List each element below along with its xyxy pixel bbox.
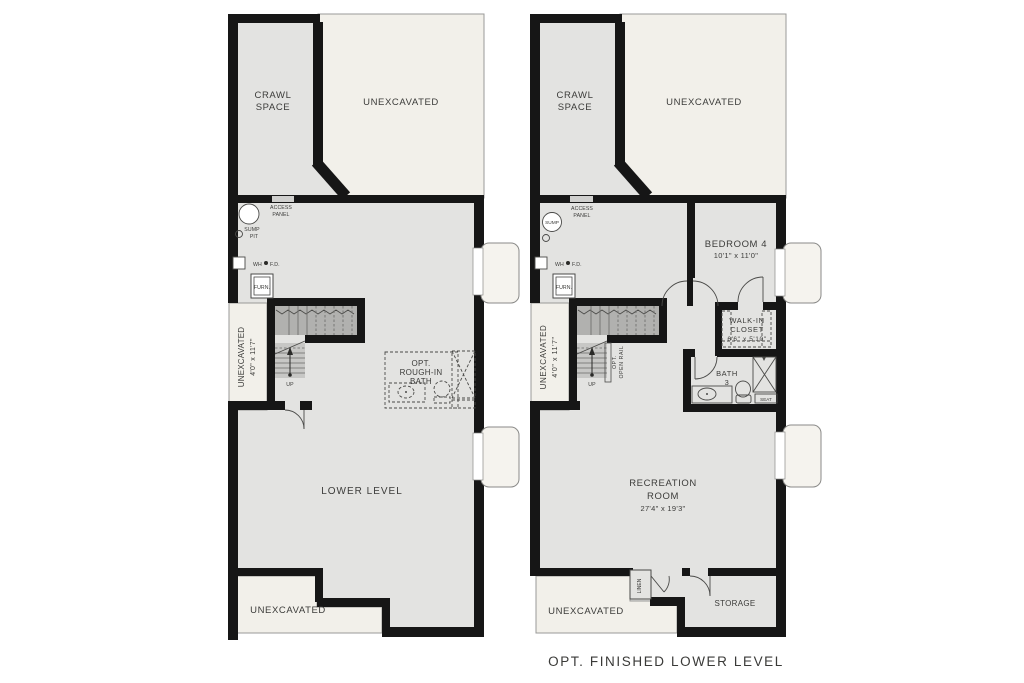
water-heater-symbol (535, 257, 547, 269)
svg-text:PANEL: PANEL (573, 213, 590, 219)
svg-text:OPEN RAIL: OPEN RAIL (619, 345, 625, 378)
label-wh: WH (555, 262, 564, 268)
svg-text:4'0" x 11'7": 4'0" x 11'7" (552, 336, 559, 377)
svg-text:PIT: PIT (250, 234, 259, 240)
plan-caption: OPT. FINISHED LOWER LEVEL (548, 654, 784, 669)
label-fd: F.D. (270, 262, 280, 268)
label-bath3: BATH (716, 369, 738, 378)
label-storage: STORAGE (714, 599, 755, 608)
floorplan-page: CRAWL SPACE UNEXCAVATED ACCESS PANEL SUM… (0, 0, 1024, 683)
label-unexcavated-top: UNEXCAVATED (363, 97, 439, 108)
label-rough-in-bath: OPT. (412, 359, 431, 368)
window-well (783, 425, 821, 487)
label-unexcavated-strip: UNEXCAVATED (539, 325, 548, 390)
svg-text:PANEL: PANEL (272, 212, 289, 218)
label-crawl-space: CRAWL (255, 90, 292, 101)
right-unexcavated-strip-area (531, 303, 569, 410)
label-lower-level: LOWER LEVEL (321, 486, 403, 497)
svg-text:3: 3 (725, 378, 730, 387)
floor-drain-symbol (566, 261, 570, 265)
label-unexcavated-bottom: UNEXCAVATED (548, 606, 624, 617)
svg-text:ROUGH-IN: ROUGH-IN (400, 368, 443, 377)
sump-pit-symbol (239, 204, 259, 224)
window-well (783, 243, 821, 303)
label-unexcavated-strip: UNEXCAVATED (237, 327, 246, 387)
label-bedroom4: BEDROOM 4 (705, 239, 767, 250)
label-up: UP (588, 382, 596, 388)
water-heater-symbol (233, 257, 245, 269)
label-walk-in-closet: WALK-IN (729, 316, 764, 325)
floorplan-drawing: CRAWL SPACE UNEXCAVATED ACCESS PANEL SUM… (0, 0, 1024, 683)
label-crawl-space: CRAWL (557, 90, 594, 101)
left-unexcavated-strip-area (229, 303, 267, 410)
label-recreation-room: RECREATION (629, 478, 697, 489)
label-opt-open-rail: OPT. (612, 355, 618, 369)
label-access-panel: ACCESS (270, 205, 292, 211)
svg-text:BATH: BATH (410, 377, 432, 386)
svg-text:SPACE: SPACE (558, 102, 593, 113)
label-furn: FURN. (556, 285, 572, 291)
svg-text:ROOM: ROOM (647, 491, 679, 502)
floor-drain-symbol (264, 261, 268, 265)
label-sump-pit: SUMP (244, 227, 260, 233)
label-bedroom4-dims: 10'1" x 11'0" (714, 251, 759, 260)
window-well (481, 243, 519, 303)
svg-text:SPACE: SPACE (256, 102, 291, 113)
label-wh: WH (253, 262, 262, 268)
right-plan: CRAWL SPACE UNEXCAVATED ACCESS PANEL SUM… (530, 14, 821, 637)
label-furn: FURN. (254, 285, 270, 291)
label-walk-in-closet-dims: 6'6" x 5'10" (727, 336, 766, 343)
label-fd: F.D. (572, 262, 582, 268)
svg-text:4'0" x 11'7": 4'0" x 11'7" (250, 338, 257, 376)
window-well (481, 427, 519, 487)
svg-text:CLOSET: CLOSET (730, 325, 764, 334)
label-seat: SEAT (760, 397, 772, 402)
label-unexcavated-bottom: UNEXCAVATED (250, 605, 326, 616)
label-sump: SUMP (545, 220, 559, 226)
label-up: UP (286, 382, 294, 388)
label-linen: LINEN (637, 578, 643, 593)
label-unexcavated-top: UNEXCAVATED (666, 97, 742, 108)
label-access-panel: ACCESS (571, 206, 593, 212)
label-recreation-dims: 27'4" x 19'3" (640, 504, 685, 513)
left-plan: CRAWL SPACE UNEXCAVATED ACCESS PANEL SUM… (228, 14, 519, 640)
